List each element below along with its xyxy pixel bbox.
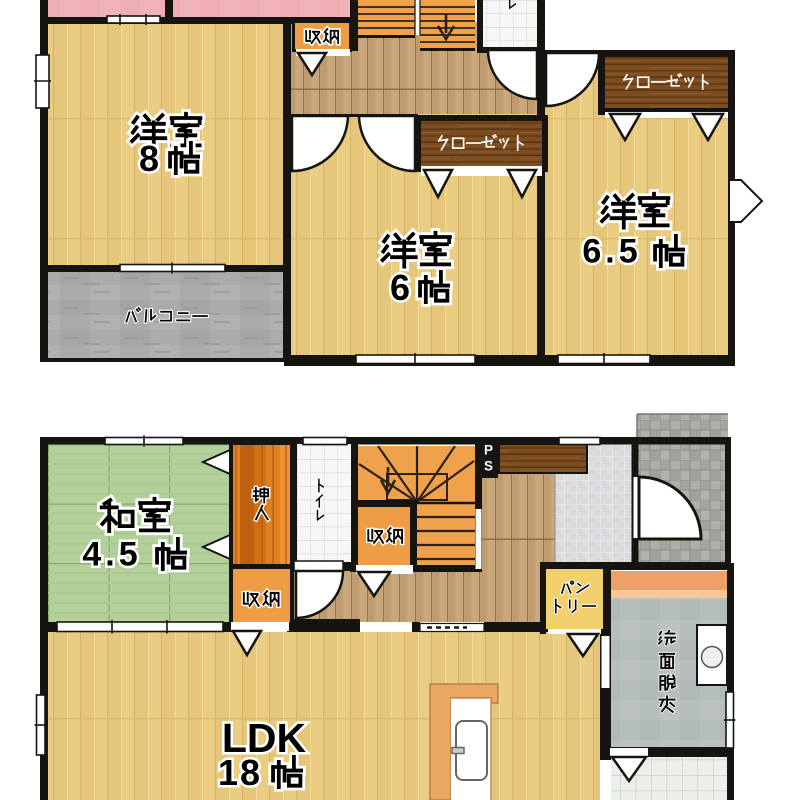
svg-text:8: 8 — [139, 138, 159, 179]
svg-text:P: P — [484, 443, 493, 458]
svg-text:S: S — [484, 459, 493, 474]
svg-text:6: 6 — [390, 267, 410, 308]
svg-text:6.5: 6.5 — [582, 233, 641, 271]
svg-text:18: 18 — [218, 752, 262, 793]
svg-text:4.5: 4.5 — [82, 536, 141, 574]
